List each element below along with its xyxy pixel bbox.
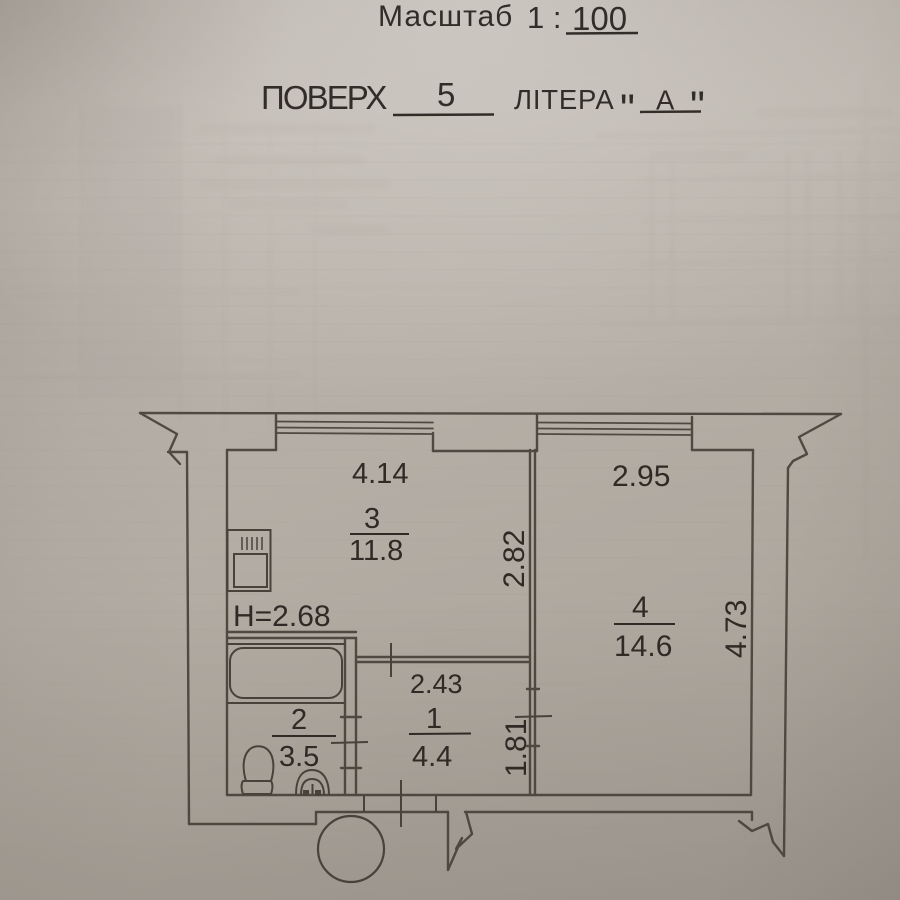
svg-text:14.6: 14.6	[614, 630, 672, 663]
svg-text:5: 5	[437, 76, 455, 113]
svg-text:": "	[620, 85, 635, 132]
svg-text:4.14: 4.14	[352, 458, 408, 490]
svg-text:2.43: 2.43	[410, 669, 463, 699]
svg-text:Н=2.68: Н=2.68	[233, 600, 331, 633]
svg-text:3.5: 3.5	[279, 741, 319, 773]
svg-text:100: 100	[572, 0, 627, 37]
svg-text:4.4: 4.4	[412, 741, 452, 773]
svg-text:1.81: 1.81	[500, 719, 533, 777]
svg-text:2.82: 2.82	[498, 530, 531, 588]
svg-text:ПОВЕРХ: ПОВЕРХ	[261, 79, 387, 116]
svg-text:1 :: 1 :	[527, 0, 561, 35]
svg-text:2.95: 2.95	[612, 460, 670, 493]
svg-text:Масштаб: Масштаб	[378, 0, 513, 33]
svg-text:ЛІТЕРА: ЛІТЕРА	[514, 84, 614, 115]
svg-text:3: 3	[364, 503, 380, 535]
svg-text:4: 4	[632, 591, 649, 624]
svg-text:4.73: 4.73	[720, 600, 753, 658]
svg-text:": "	[690, 82, 705, 129]
svg-text:11.8: 11.8	[349, 535, 403, 567]
svg-text:2: 2	[291, 704, 307, 736]
svg-text:1: 1	[426, 703, 442, 735]
